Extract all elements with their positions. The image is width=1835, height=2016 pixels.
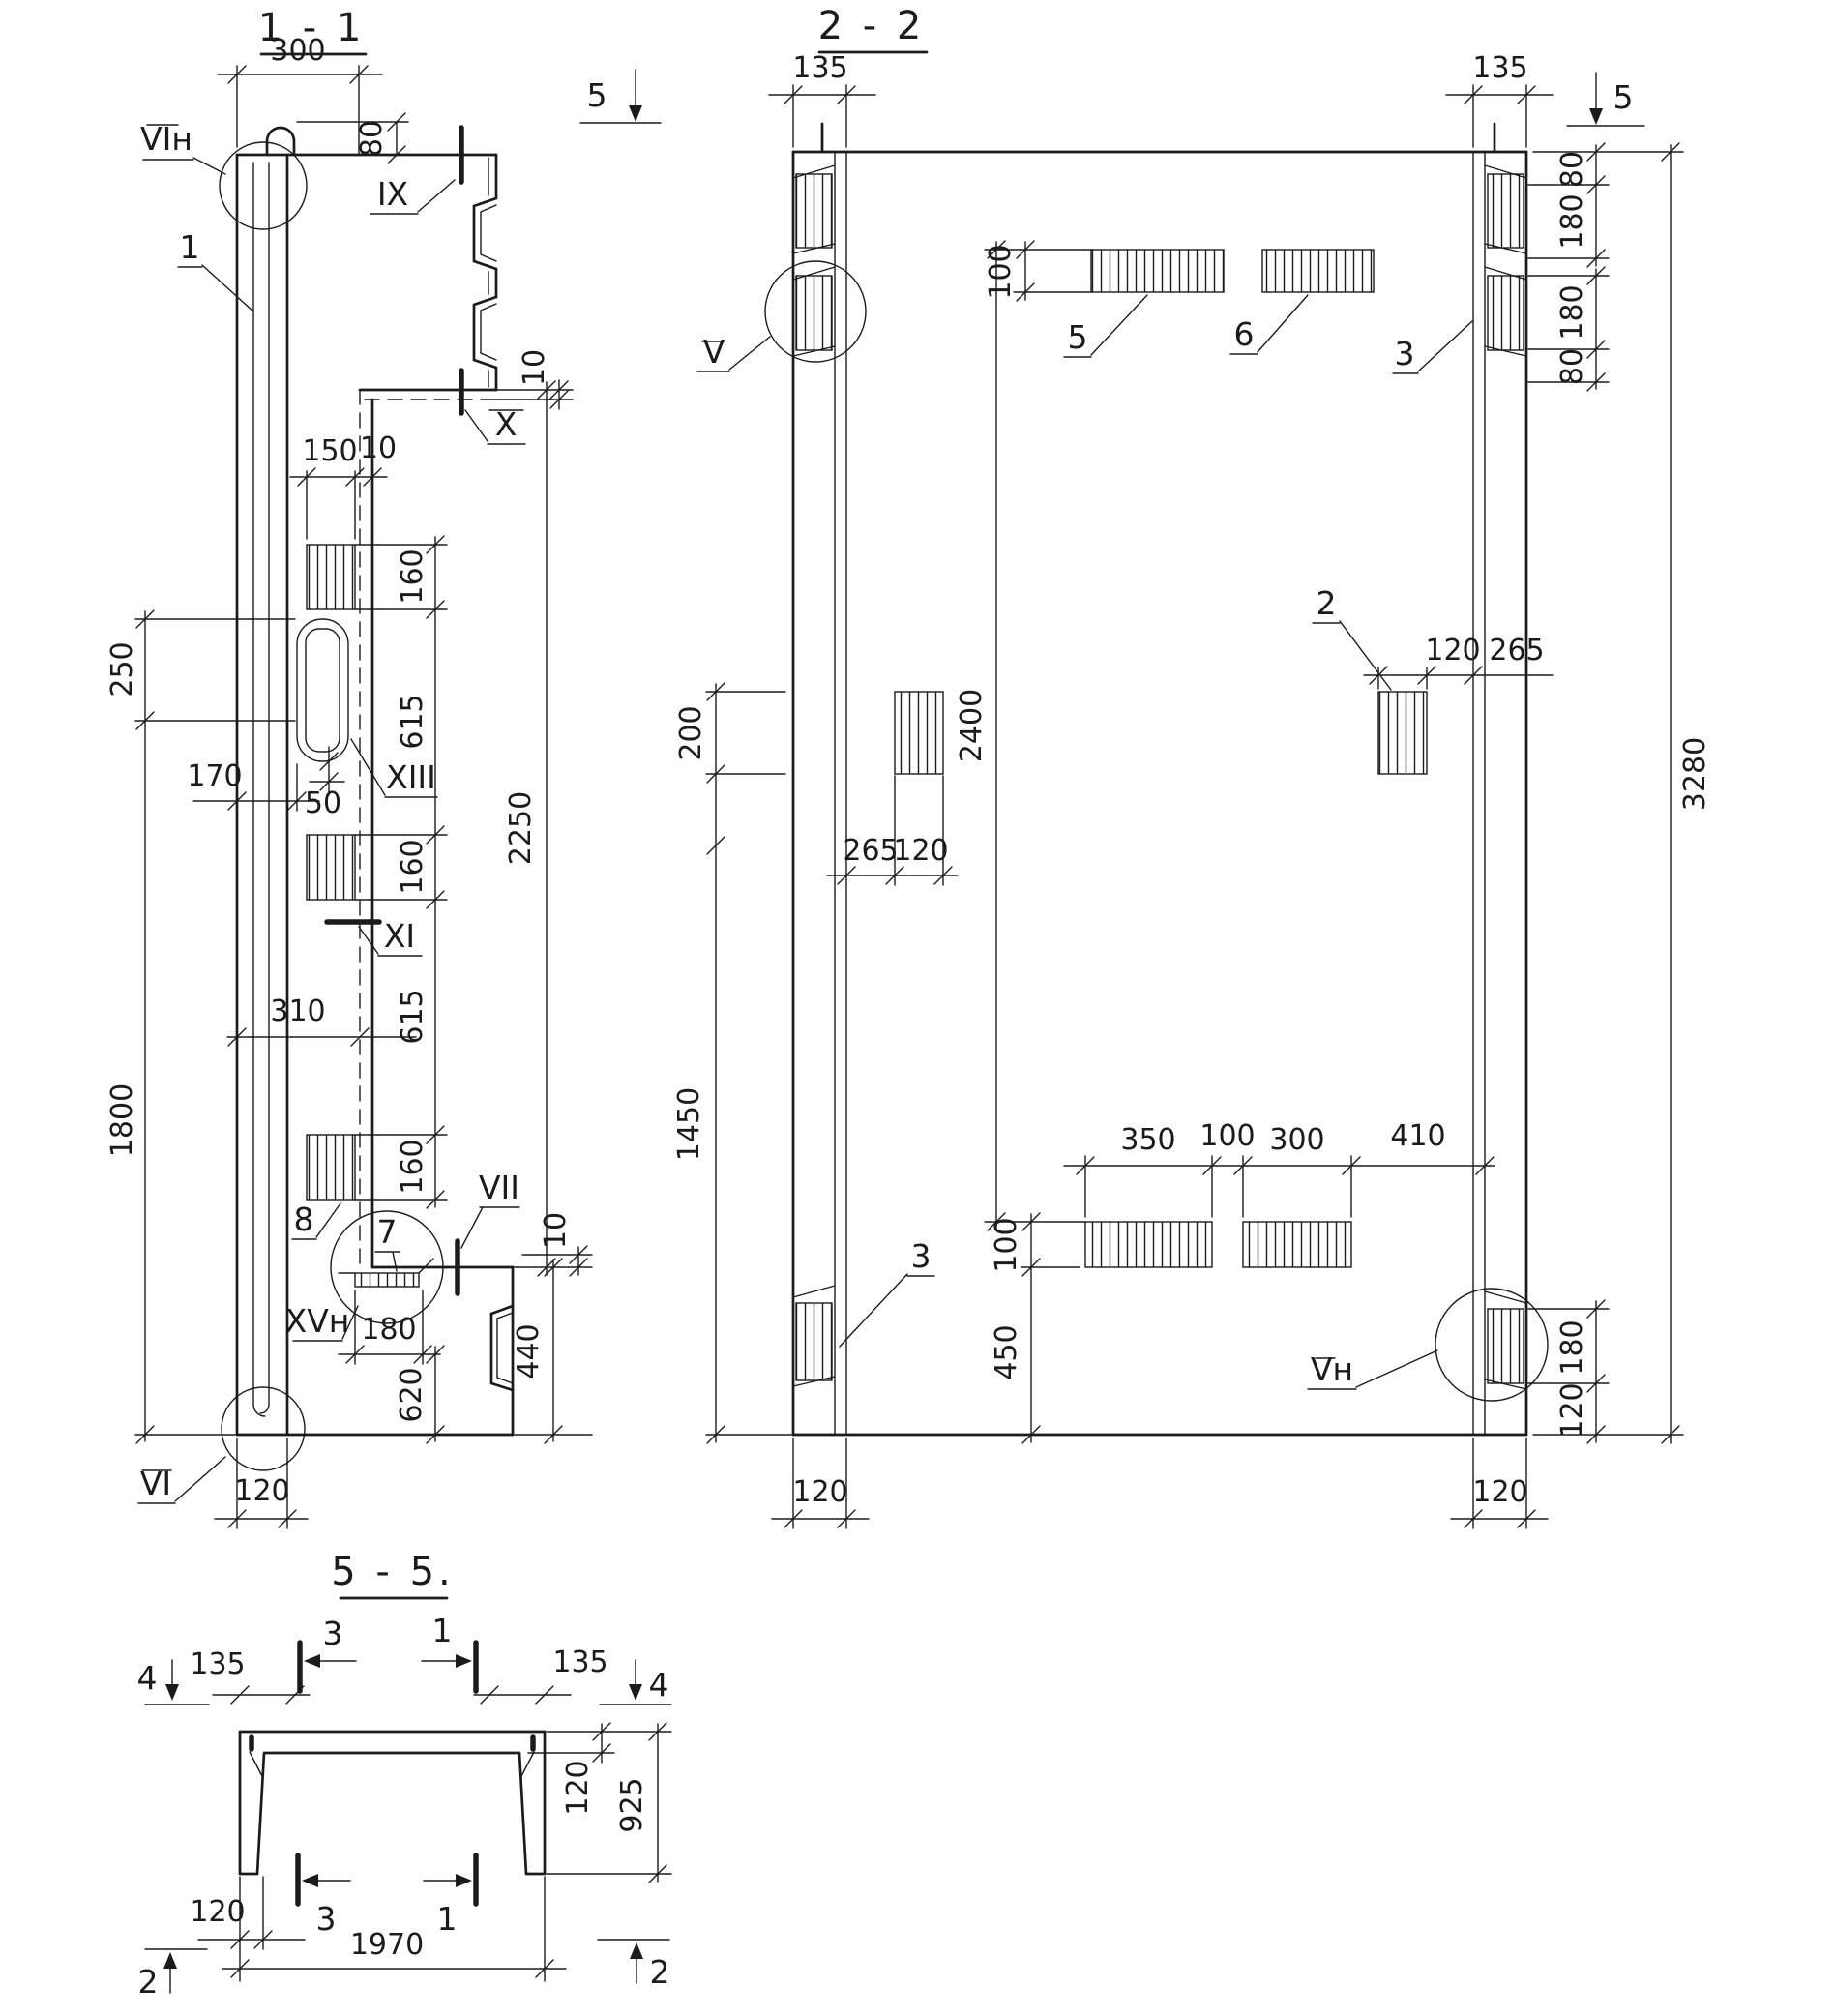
dim-120-right: 120 [1425, 634, 1480, 667]
section-5-5-title: 5 - 5. [331, 1550, 454, 1594]
dim-2250: 2250 [504, 791, 538, 865]
section-2-2: 2 - 2 [580, 4, 1712, 1528]
marker-2-right: 2 [650, 1953, 670, 1991]
label-ix: IX [377, 175, 408, 213]
dim-3280: 3280 [1678, 737, 1712, 811]
section-5-5-dimensions: 135 135 120 925 120 1970 [190, 1645, 671, 1981]
dim-180-c: 180 [1555, 1319, 1589, 1375]
label-7: 7 [377, 1213, 398, 1251]
dim-100-top: 100 [984, 244, 1018, 299]
blueprint-page: 1 - 1 [0, 0, 1835, 2016]
marker-3-bottom: 3 [316, 1900, 337, 1938]
label-2: 2 [1317, 584, 1337, 622]
dim-160-3: 160 [396, 1139, 429, 1194]
label-6: 6 [1234, 315, 1255, 353]
dim-120-left: 120 [893, 834, 948, 868]
label-8: 8 [294, 1201, 314, 1238]
label-3-top: 3 [1395, 335, 1415, 372]
technical-drawing: 1 - 1 [0, 0, 1835, 2016]
detail-circle-vi [222, 1387, 305, 1470]
dim-120-bottom-left: 120 [792, 1475, 847, 1509]
label-5: 5 [1068, 318, 1088, 356]
dim-120-slab: 120 [561, 1760, 595, 1815]
dim-135-right-55: 135 [552, 1645, 607, 1679]
dim-615-2: 615 [396, 989, 429, 1044]
dim-120-bottom-right: 120 [1472, 1475, 1527, 1509]
base-plate-7 [355, 1273, 419, 1287]
dim-2400: 2400 [955, 689, 989, 762]
dim-450: 450 [990, 1324, 1023, 1379]
section-2-2-title: 2 - 2 [818, 4, 926, 48]
marker-4-right: 4 [649, 1666, 669, 1704]
marker-5-right: 5 [1613, 78, 1634, 116]
dim-120: 120 [234, 1474, 289, 1508]
column-keys [765, 165, 1548, 1401]
dim-265-right: 265 [1489, 634, 1544, 667]
dim-170: 170 [187, 759, 242, 793]
section-1-1-outline [237, 155, 513, 1435]
dim-150: 150 [302, 434, 357, 468]
label-vin: VIн [140, 120, 192, 158]
dim-350: 350 [1120, 1123, 1175, 1157]
dim-180-a: 180 [1555, 193, 1589, 249]
dim-250: 250 [105, 641, 139, 697]
marker-5-left: 5 [587, 76, 607, 114]
label-vii: VII [479, 1169, 519, 1206]
dim-1450: 1450 [672, 1087, 706, 1161]
label-v: V [703, 333, 725, 371]
dim-10-step: 10 [518, 349, 551, 386]
dim-120-c: 120 [1555, 1382, 1589, 1438]
label-3-bottom: 3 [911, 1237, 932, 1275]
dim-310: 310 [270, 994, 325, 1028]
dim-80-a: 80 [1555, 151, 1589, 188]
label-xi: XI [384, 917, 415, 955]
dim-80: 80 [355, 120, 389, 157]
section-1-1: 1 - 1 [105, 6, 592, 1528]
dim-50: 50 [305, 786, 341, 820]
dim-135-right: 135 [1472, 51, 1527, 85]
marker-1-top: 1 [432, 1612, 453, 1649]
dim-200: 200 [674, 705, 708, 760]
dim-925: 925 [615, 1777, 649, 1832]
dim-180-b: 180 [1555, 284, 1589, 340]
dim-440: 440 [512, 1323, 546, 1379]
dim-135-left: 135 [792, 51, 847, 85]
dim-410: 410 [1390, 1119, 1445, 1153]
marker-3-top: 3 [323, 1615, 343, 1652]
dim-160-2: 160 [396, 839, 429, 894]
section-5-5-outline [240, 1732, 545, 1874]
label-vi: VI [140, 1465, 171, 1502]
dim-100-mid: 100 [1199, 1119, 1255, 1153]
dim-80-b: 80 [1555, 348, 1589, 385]
dim-180: 180 [361, 1313, 416, 1347]
dim-120-bottom-55: 120 [190, 1895, 245, 1929]
label-vn: Vн [1311, 1350, 1353, 1388]
dim-1970: 1970 [350, 1928, 424, 1962]
section-5-5: 5 - 5. 4 4 3 1 3 1 [137, 1550, 672, 2001]
dim-160-1: 160 [396, 548, 429, 604]
dim-620: 620 [395, 1367, 429, 1422]
marker-1-bottom: 1 [437, 1900, 458, 1938]
dim-615-1: 615 [396, 694, 429, 749]
label-x: X [495, 405, 518, 443]
label-xvn: XVн [285, 1302, 350, 1340]
dim-300: 300 [270, 34, 325, 68]
dim-10-bottom: 10 [539, 1212, 573, 1249]
slot-xiii [297, 619, 348, 761]
marker-2-left: 2 [138, 1963, 159, 2001]
dim-265-left: 265 [843, 834, 898, 868]
marker-4-left: 4 [137, 1659, 158, 1697]
rebar-marks [252, 1737, 533, 1749]
label-xiii: XIII [386, 758, 436, 796]
dim-135-left-55: 135 [190, 1647, 245, 1681]
label-1: 1 [180, 228, 200, 266]
section-cut-ticks [327, 128, 461, 1293]
dim-300: 300 [1269, 1123, 1324, 1157]
dim-100-bottom: 100 [990, 1217, 1023, 1272]
dim-10-gap: 10 [360, 431, 397, 465]
dim-1800: 1800 [105, 1083, 139, 1157]
